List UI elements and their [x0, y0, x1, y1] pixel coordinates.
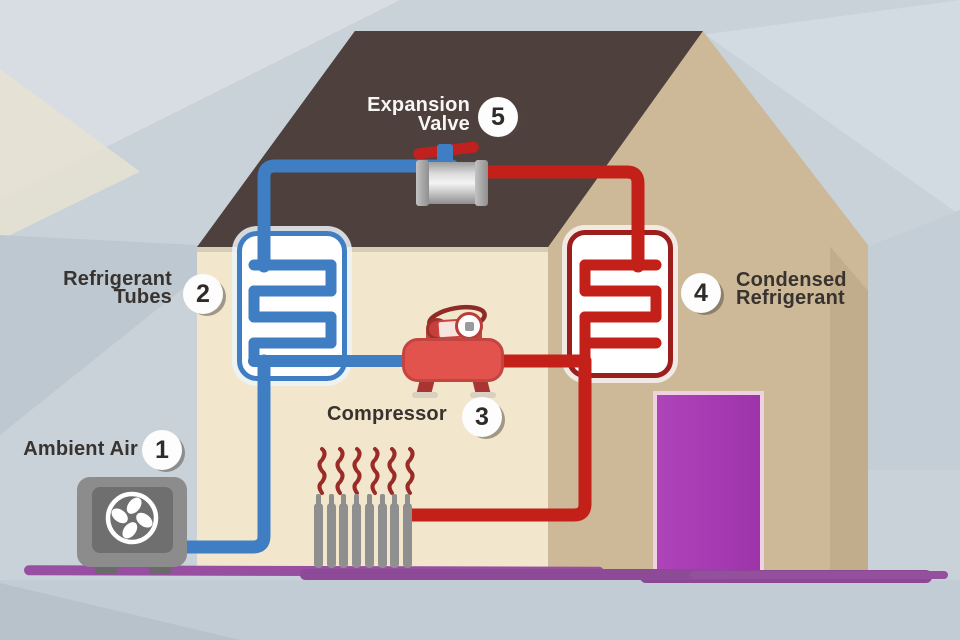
label-expansion-valve: Expansion Valve [270, 96, 470, 134]
number-badge-2: 2 [183, 274, 223, 314]
radiator-fin [403, 503, 412, 568]
condenser-box [567, 230, 673, 378]
label-refrigerant-tubes: Refrigerant Tubes [0, 271, 172, 306]
label-ambient-air: Ambient Air [0, 441, 138, 459]
expansion-valve [416, 160, 488, 206]
fan-icon [105, 491, 159, 545]
label-compressor: Compressor [327, 406, 447, 424]
compressor-tank [402, 338, 504, 382]
number-badge-5: 5 [478, 97, 518, 137]
compressor-foot [412, 392, 438, 398]
label-text: Compressor [327, 403, 447, 425]
heat-pump-diagram: Ambient Air 1 Refrigerant Tubes 2 Compre… [0, 0, 960, 640]
outdoor-unit [77, 477, 187, 567]
radiator-fin [390, 503, 399, 568]
valve-flange-left [416, 160, 429, 206]
radiator-fin [327, 503, 336, 568]
number-badge-1: 1 [142, 430, 182, 470]
ground-line [300, 569, 730, 580]
evaporator-box [237, 231, 347, 381]
label-line: Tubes [0, 289, 172, 307]
label-line: Refrigerant [736, 290, 847, 308]
valve-body [426, 162, 478, 204]
radiator-fin [339, 503, 348, 568]
ground-line [690, 571, 948, 579]
label-text: Ambient Air [23, 438, 138, 460]
number-badge-4: 4 [681, 273, 721, 313]
radiator-fin [314, 503, 323, 568]
compressor-unit [400, 300, 520, 400]
radiator-fin [365, 503, 374, 568]
house-door [653, 391, 764, 570]
label-condensed-refrigerant: Condensed Refrigerant [736, 272, 847, 307]
radiator-fin [352, 503, 361, 568]
label-line: Valve [270, 115, 470, 134]
valve-flange-right [475, 160, 488, 206]
bg-facet-right [860, 210, 960, 470]
gauge-icon [455, 312, 483, 340]
number-badge-3: 3 [462, 397, 502, 437]
radiator [314, 494, 418, 570]
radiator-fin [378, 503, 387, 568]
